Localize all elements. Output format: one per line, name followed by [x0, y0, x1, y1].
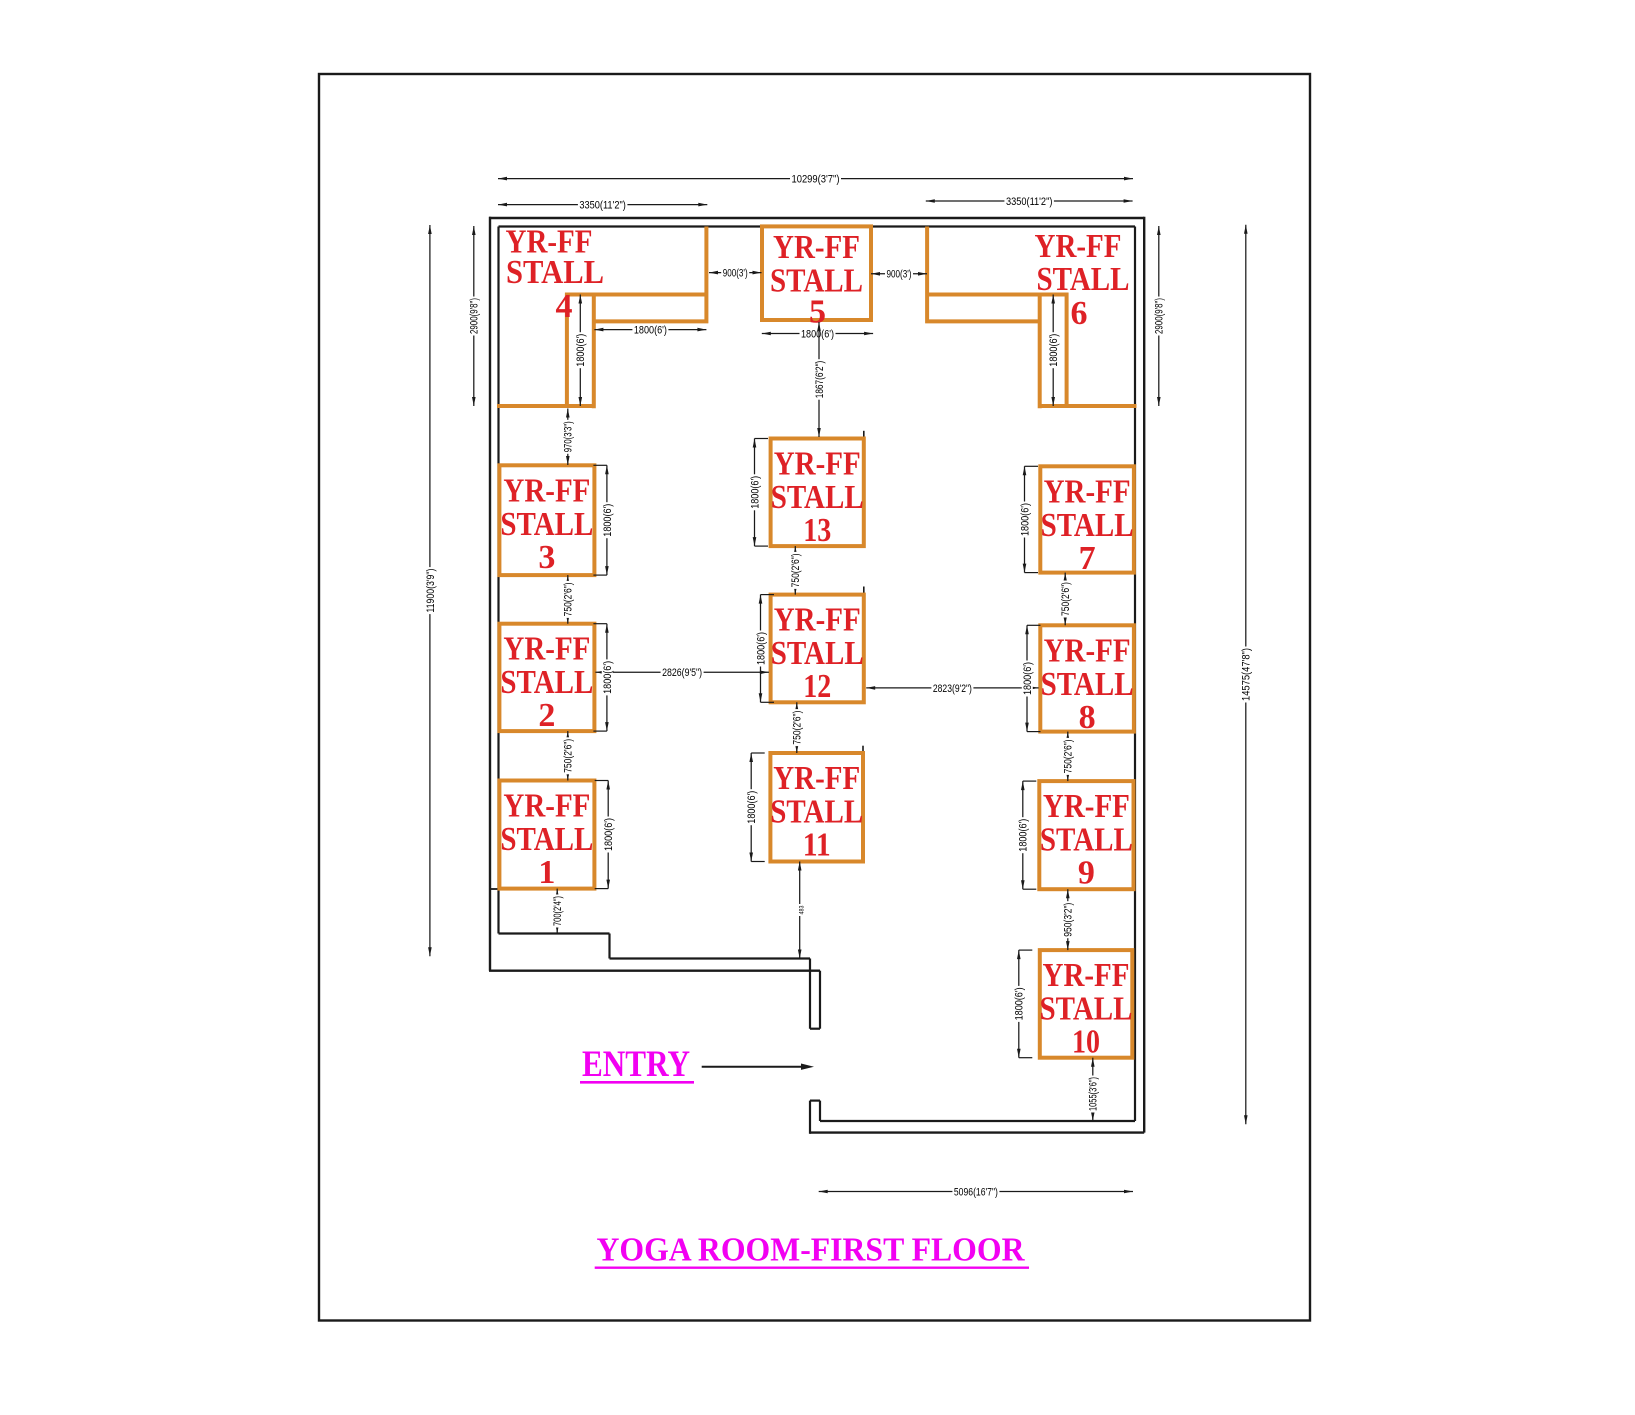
svg-text:YR-FF: YR-FF — [774, 602, 861, 639]
svg-text:2: 2 — [538, 697, 555, 734]
svg-text:1800(6'): 1800(6') — [602, 504, 614, 537]
svg-text:2826(9'5"): 2826(9'5") — [662, 667, 702, 679]
svg-text:2900(9'8"): 2900(9'8") — [469, 298, 481, 334]
svg-text:YR-FF: YR-FF — [1035, 228, 1122, 265]
svg-text:4: 4 — [556, 288, 573, 325]
svg-text:YR-FF: YR-FF — [503, 472, 590, 509]
svg-text:1800(6'): 1800(6') — [755, 632, 767, 665]
svg-text:483: 483 — [799, 905, 806, 914]
svg-text:1800(6'): 1800(6') — [602, 661, 614, 694]
svg-text:STALL: STALL — [771, 479, 864, 516]
svg-text:STALL: STALL — [506, 254, 604, 291]
svg-text:5096(16'7"): 5096(16'7") — [954, 1186, 998, 1198]
svg-text:STALL: STALL — [500, 664, 593, 701]
svg-text:YR-FF: YR-FF — [1043, 788, 1130, 825]
svg-text:YR-FF: YR-FF — [774, 446, 861, 483]
svg-text:STALL: STALL — [770, 794, 863, 831]
svg-text:13: 13 — [803, 512, 831, 549]
svg-text:750(2'6"): 750(2'6") — [1060, 582, 1072, 616]
svg-text:STALL: STALL — [1040, 822, 1133, 859]
svg-text:750(2'6"): 750(2'6") — [792, 711, 804, 745]
svg-text:970(3'3"): 970(3'3") — [563, 421, 575, 452]
svg-text:3350(11'2"): 3350(11'2") — [579, 200, 626, 212]
svg-text:8: 8 — [1079, 699, 1096, 736]
svg-text:YR-FF: YR-FF — [1044, 632, 1131, 669]
svg-text:12: 12 — [803, 668, 831, 705]
svg-text:3: 3 — [538, 539, 555, 576]
svg-text:1867(6'2"): 1867(6'2") — [814, 361, 826, 399]
svg-text:STALL: STALL — [1041, 666, 1134, 703]
svg-text:7: 7 — [1079, 540, 1096, 577]
svg-text:STALL: STALL — [1037, 261, 1130, 298]
svg-text:900(3'): 900(3') — [723, 268, 748, 280]
svg-text:750(2'6"): 750(2'6") — [1063, 739, 1075, 773]
svg-text:6: 6 — [1071, 295, 1088, 332]
svg-text:14575(47'8"): 14575(47'8") — [1241, 648, 1253, 701]
svg-text:950(3'2"): 950(3'2") — [1063, 903, 1075, 937]
svg-text:3350(11'2"): 3350(11'2") — [1006, 196, 1053, 208]
svg-text:2823(9'2"): 2823(9'2") — [933, 683, 972, 695]
svg-text:1800(6'): 1800(6') — [749, 476, 761, 509]
svg-text:ENTRY: ENTRY — [582, 1044, 690, 1085]
svg-text:YOGA ROOM-FIRST FLOOR: YOGA ROOM-FIRST FLOOR — [597, 1232, 1025, 1269]
svg-text:700(2'4"): 700(2'4") — [552, 896, 564, 926]
svg-text:10299(3'7"): 10299(3'7") — [792, 174, 840, 186]
svg-text:1800(6'): 1800(6') — [603, 818, 615, 851]
svg-text:1800(6'): 1800(6') — [1022, 662, 1034, 695]
svg-text:YR-FF: YR-FF — [1044, 473, 1131, 510]
svg-text:STALL: STALL — [500, 821, 593, 858]
svg-text:1800(6'): 1800(6') — [1048, 334, 1060, 367]
svg-text:750(2'6"): 750(2'6") — [563, 582, 575, 616]
svg-text:750(2'6"): 750(2'6") — [563, 739, 575, 773]
svg-text:STALL: STALL — [1041, 507, 1134, 544]
svg-text:1800(6'): 1800(6') — [746, 791, 758, 824]
svg-text:YR-FF: YR-FF — [773, 229, 860, 266]
svg-text:1800(6'): 1800(6') — [575, 334, 587, 367]
svg-text:STALL: STALL — [500, 506, 593, 543]
svg-text:1800(6'): 1800(6') — [634, 325, 667, 337]
svg-text:2900(9'8"): 2900(9'8") — [1154, 298, 1166, 334]
svg-text:10: 10 — [1072, 1024, 1100, 1061]
svg-text:1800(6'): 1800(6') — [1014, 987, 1026, 1020]
svg-text:11: 11 — [803, 827, 831, 864]
svg-text:YR-FF: YR-FF — [503, 788, 590, 825]
svg-text:9: 9 — [1078, 855, 1095, 892]
svg-text:1055(3'6"): 1055(3'6") — [1088, 1077, 1100, 1111]
svg-text:900(3'): 900(3') — [887, 269, 912, 281]
svg-text:YR-FF: YR-FF — [503, 631, 590, 668]
svg-text:1800(6'): 1800(6') — [1018, 819, 1030, 852]
svg-text:5: 5 — [809, 293, 826, 330]
svg-text:1800(6'): 1800(6') — [1019, 503, 1031, 536]
svg-text:STALL: STALL — [1040, 991, 1133, 1028]
svg-text:YR-FF: YR-FF — [773, 760, 860, 797]
svg-text:STALL: STALL — [771, 635, 864, 672]
svg-text:750(2'6"): 750(2'6") — [790, 553, 802, 587]
svg-text:1: 1 — [538, 854, 555, 891]
svg-text:11900(3'9"): 11900(3'9") — [425, 569, 437, 613]
svg-text:YR-FF: YR-FF — [1043, 957, 1130, 994]
